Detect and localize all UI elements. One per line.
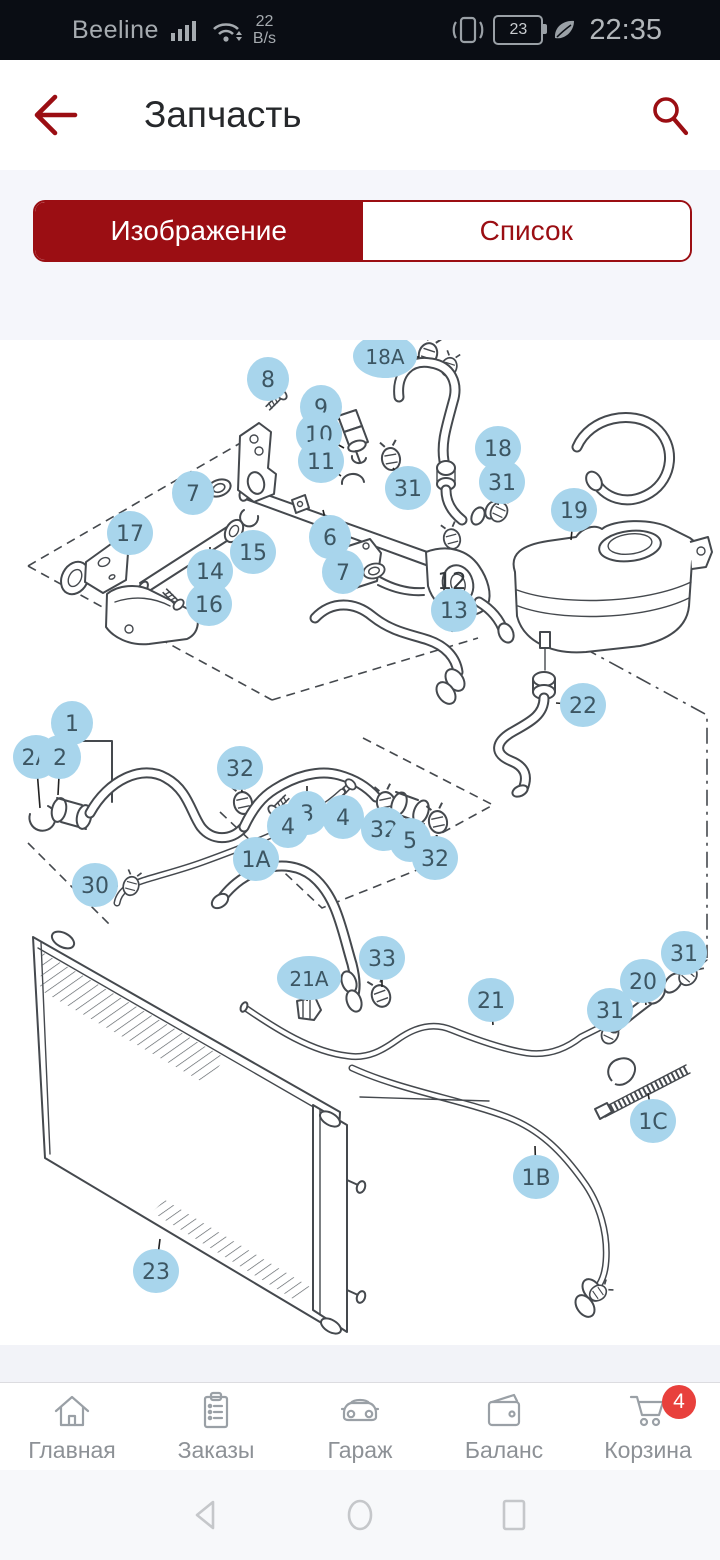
svg-text:31: 31	[394, 477, 422, 502]
view-switcher: Изображение Список	[33, 200, 692, 262]
svg-text:20: 20	[629, 970, 657, 995]
nav-label: Главная	[28, 1437, 116, 1464]
svg-text:31: 31	[488, 471, 516, 496]
android-navigation-bar	[0, 1470, 720, 1560]
svg-text:7: 7	[336, 561, 350, 586]
nav-label: Баланс	[465, 1437, 543, 1464]
orders-icon	[194, 1389, 238, 1433]
search-icon	[646, 91, 694, 139]
nav-item-home[interactable]: Главная	[0, 1383, 144, 1470]
bottom-navigation: Главная Заказы Гараж	[0, 1383, 720, 1470]
battery-icon: 23	[493, 15, 543, 45]
svg-text:16: 16	[195, 593, 223, 618]
android-back-button[interactable]	[183, 1492, 229, 1538]
svg-text:14: 14	[196, 560, 224, 585]
svg-text:17: 17	[116, 522, 144, 547]
callout-1B[interactable]: 1B	[513, 1146, 559, 1199]
callout-31[interactable]: 31	[661, 931, 707, 975]
nav-label: Заказы	[178, 1437, 255, 1464]
svg-text:1B: 1B	[521, 1166, 550, 1191]
svg-text:19: 19	[560, 499, 588, 524]
callout-21[interactable]: 21	[468, 978, 514, 1025]
svg-text:33: 33	[368, 947, 396, 972]
svg-text:8: 8	[261, 368, 275, 393]
parts-diagram[interactable]: 818A910113118311971715141667132212A23234…	[0, 340, 720, 1345]
svg-text:13: 13	[440, 599, 468, 624]
android-home-button[interactable]	[337, 1492, 383, 1538]
callout-33[interactable]: 33	[359, 936, 405, 987]
callout-22[interactable]: 22	[556, 683, 606, 727]
network-speed: 22 B/s	[253, 13, 276, 47]
tab-list[interactable]: Список	[363, 202, 691, 260]
callout-30[interactable]: 30	[72, 863, 118, 907]
svg-text:32: 32	[226, 757, 254, 782]
search-button[interactable]	[620, 60, 720, 170]
label-12: 12	[437, 569, 466, 595]
svg-text:6: 6	[323, 526, 337, 551]
nav-item-orders[interactable]: Заказы	[144, 1383, 288, 1470]
page-title: Запчасть	[144, 94, 620, 136]
signal-icon	[169, 16, 201, 44]
callout-32[interactable]: 32	[217, 746, 263, 792]
nav-item-cart[interactable]: Корзина 4	[576, 1383, 720, 1470]
android-recents-button[interactable]	[491, 1492, 537, 1538]
svg-text:31: 31	[596, 999, 624, 1024]
back-button[interactable]	[0, 60, 110, 170]
vibrate-icon	[451, 14, 485, 46]
svg-text:18A: 18A	[365, 345, 404, 369]
tab-image[interactable]: Изображение	[35, 202, 363, 260]
clock: 22:35	[589, 14, 662, 47]
nav-label: Гараж	[328, 1437, 393, 1464]
nav-item-balance[interactable]: Баланс	[432, 1383, 576, 1470]
svg-text:30: 30	[81, 874, 109, 899]
callout-31[interactable]: 31	[479, 460, 525, 505]
svg-text:11: 11	[307, 450, 335, 475]
carrier-label: Beeline	[72, 16, 159, 45]
callout-2[interactable]: 2	[39, 735, 81, 795]
app-bar: Запчасть	[0, 60, 720, 170]
callout-21A[interactable]: 21A	[277, 956, 341, 1001]
callout-7[interactable]: 7	[172, 471, 214, 515]
svg-text:2: 2	[53, 746, 67, 771]
svg-text:32: 32	[421, 847, 449, 872]
mount-bracket-part	[85, 544, 198, 644]
content-gap	[0, 1345, 720, 1383]
svg-text:4: 4	[281, 815, 295, 840]
callout-1A[interactable]: 1A	[233, 837, 279, 881]
svg-text:21: 21	[477, 989, 505, 1014]
garage-icon	[338, 1389, 382, 1433]
svg-text:18: 18	[484, 437, 512, 462]
bracket-part	[238, 387, 289, 502]
balance-icon	[482, 1389, 526, 1433]
svg-text:22: 22	[569, 694, 597, 719]
callout-8[interactable]: 8	[247, 357, 289, 401]
wifi-icon	[211, 16, 243, 44]
tab-section: Изображение Список	[0, 170, 720, 340]
callout-15[interactable]: 15	[230, 530, 276, 574]
svg-text:15: 15	[239, 541, 267, 566]
svg-text:1C: 1C	[638, 1110, 667, 1135]
svg-text:4: 4	[336, 806, 350, 831]
cart-badge: 4	[662, 1385, 696, 1419]
callout-31[interactable]: 31	[385, 466, 431, 510]
app-screen: Beeline 22 B/s	[0, 0, 720, 1560]
nav-label: Корзина	[604, 1437, 692, 1464]
tube-part	[56, 510, 259, 599]
svg-text:7: 7	[186, 482, 200, 507]
expansion-tank-part	[499, 521, 712, 799]
status-bar: Beeline 22 B/s	[0, 0, 720, 60]
svg-text:1: 1	[65, 712, 79, 737]
callout-7[interactable]: 7	[322, 550, 364, 594]
svg-text:31: 31	[670, 942, 698, 967]
svg-text:21A: 21A	[289, 967, 328, 991]
lower-pipe-part	[352, 1068, 614, 1320]
power-saving-leaf-icon	[551, 17, 577, 43]
callout-17[interactable]: 17	[107, 511, 153, 555]
home-icon	[50, 1389, 94, 1433]
callout-11[interactable]: 11	[298, 439, 344, 483]
callout-23[interactable]: 23	[133, 1239, 179, 1293]
svg-text:23: 23	[142, 1260, 170, 1285]
callout-16[interactable]: 16	[186, 582, 232, 626]
svg-text:1A: 1A	[241, 848, 270, 873]
callout-4[interactable]: 4	[322, 795, 364, 839]
callout-4[interactable]: 4	[267, 804, 309, 848]
back-arrow-icon	[29, 91, 81, 139]
nav-item-garage[interactable]: Гараж	[288, 1383, 432, 1470]
